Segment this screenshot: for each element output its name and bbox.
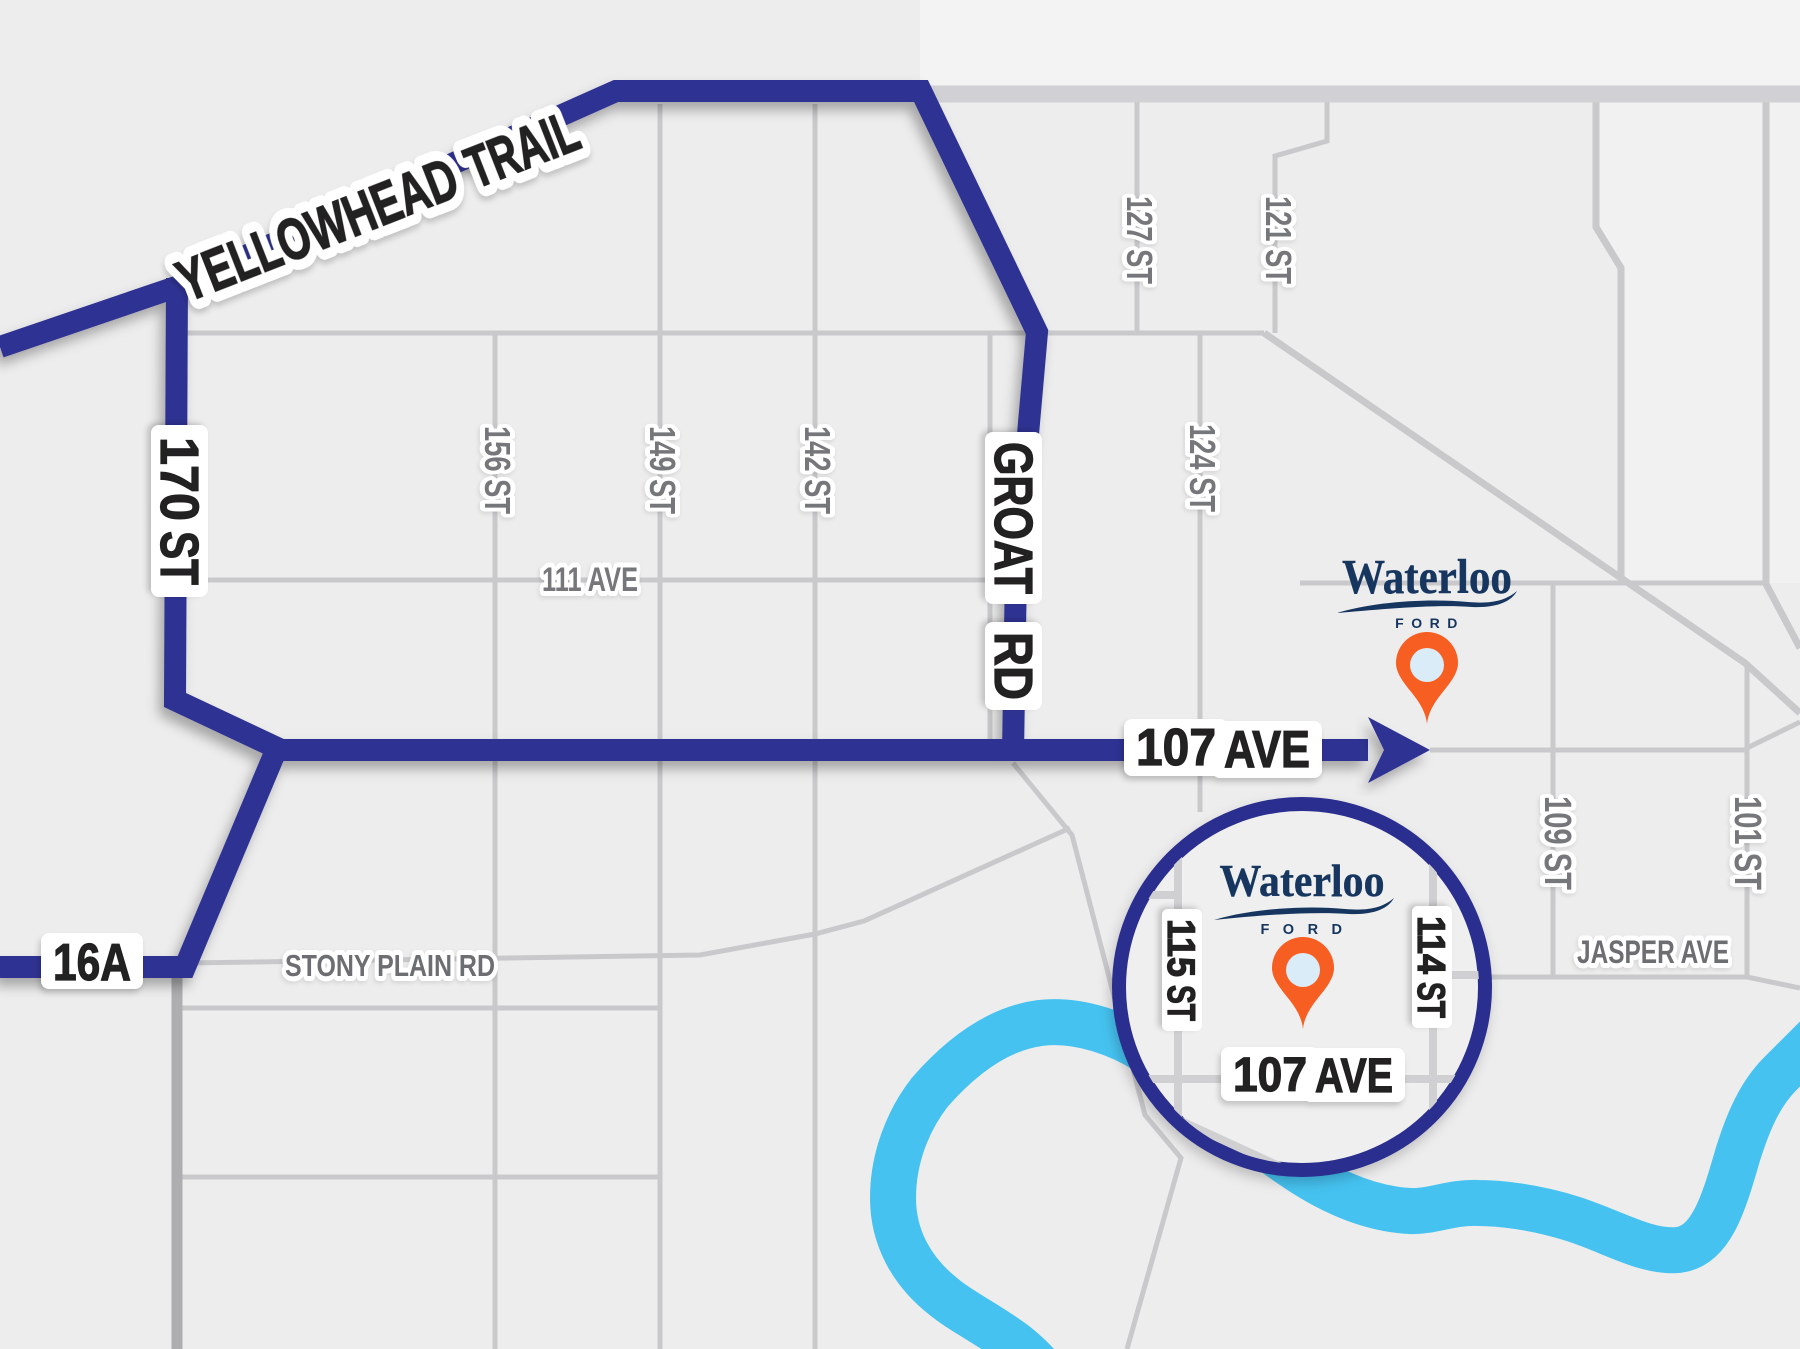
svg-text:114: 114 [1409, 916, 1452, 974]
svg-text:121 ST: 121 ST [1258, 196, 1299, 284]
svg-text:101 ST: 101 ST [1726, 796, 1768, 890]
svg-text:Waterloo: Waterloo [1342, 549, 1512, 604]
svg-text:ST: ST [1159, 985, 1202, 1021]
svg-text:FORD: FORD [1260, 922, 1355, 938]
svg-text:107: 107 [1233, 1049, 1307, 1102]
svg-text:AVE: AVE [1224, 721, 1310, 779]
svg-text:FORD: FORD [1395, 615, 1465, 631]
svg-text:107: 107 [1136, 719, 1216, 777]
svg-text:16A: 16A [53, 934, 131, 992]
svg-text:156 ST: 156 ST [477, 426, 518, 514]
svg-text:GROAT: GROAT [983, 442, 1043, 594]
svg-text:RD: RD [983, 632, 1043, 700]
svg-text:ST: ST [1409, 982, 1452, 1018]
svg-text:115: 115 [1159, 919, 1202, 977]
svg-text:170: 170 [149, 437, 209, 521]
svg-text:142 ST: 142 ST [797, 426, 838, 514]
svg-text:109 ST: 109 ST [1536, 796, 1578, 890]
svg-text:AVE: AVE [1315, 1050, 1393, 1103]
svg-text:JASPER AVE: JASPER AVE [1577, 934, 1729, 970]
svg-text:124 ST: 124 ST [1182, 424, 1223, 512]
svg-text:127 ST: 127 ST [1119, 196, 1160, 284]
svg-text:ST: ST [149, 531, 209, 585]
svg-text:149 ST: 149 ST [642, 426, 683, 514]
svg-text:111 AVE: 111 AVE [542, 561, 638, 599]
svg-text:Waterloo: Waterloo [1220, 856, 1385, 906]
svg-text:STONY PLAIN RD: STONY PLAIN RD [285, 948, 495, 983]
